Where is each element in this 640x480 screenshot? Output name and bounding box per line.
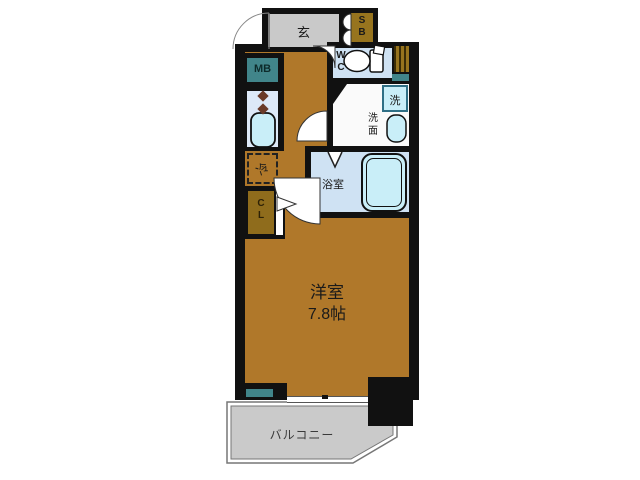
diagonal-wall bbox=[333, 84, 347, 104]
fixtures-overlay bbox=[0, 0, 640, 480]
shoe-box-door-swings bbox=[343, 14, 351, 46]
floor-plan: 玄 S B W C MB 洗 洗 面 浴室 C L 冷 洋室 7.8帖 バルコニ… bbox=[0, 0, 640, 480]
entrance-door-swing bbox=[233, 13, 269, 49]
bathtub bbox=[362, 154, 406, 211]
stove-burners bbox=[257, 90, 268, 114]
washroom-door-swing bbox=[297, 111, 327, 141]
wash-basin bbox=[387, 115, 406, 142]
wc-door-swing bbox=[313, 46, 335, 68]
bath-folding-door bbox=[328, 152, 342, 167]
window-tick bbox=[322, 395, 328, 399]
toilet-icon bbox=[344, 45, 385, 72]
kitchen-sink bbox=[251, 113, 275, 147]
